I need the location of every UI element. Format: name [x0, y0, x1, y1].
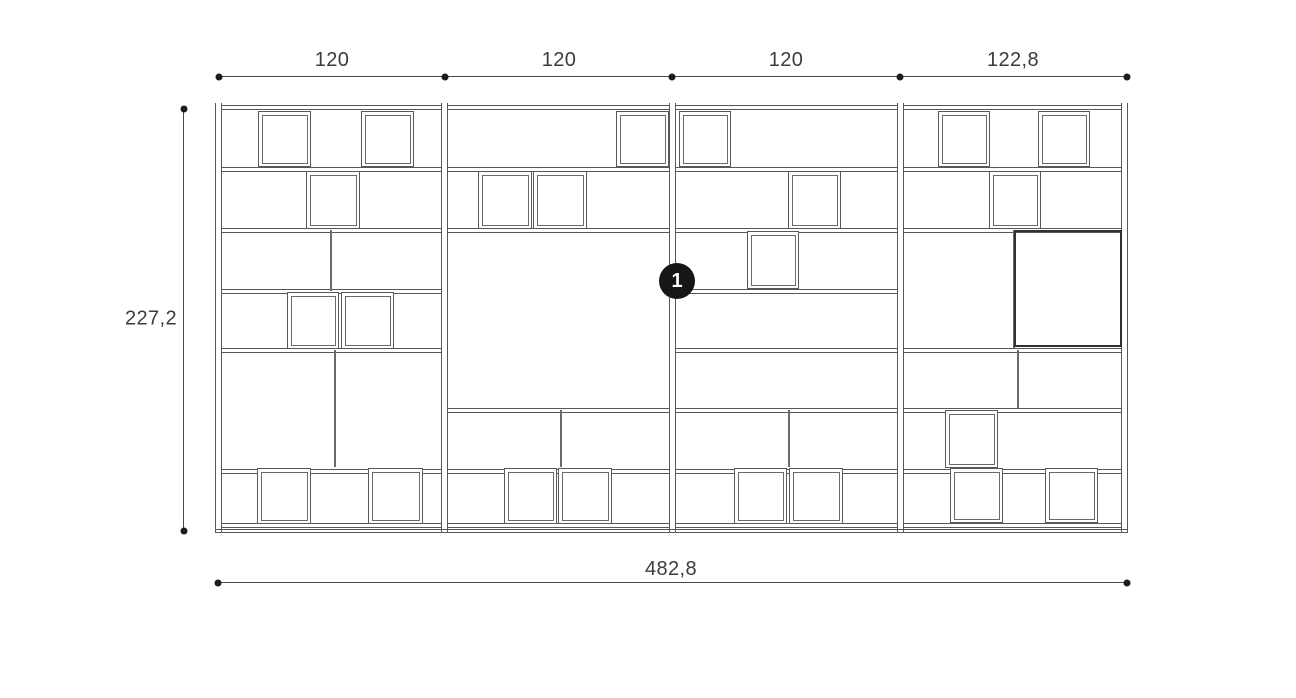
storage-box-inner	[751, 235, 796, 286]
storage-box-inner	[345, 296, 391, 346]
storage-box	[478, 171, 532, 229]
side-panel	[669, 103, 676, 533]
vertical-divider	[334, 350, 336, 467]
side-panel	[215, 103, 222, 533]
storage-box	[287, 292, 339, 349]
storage-box-inner	[372, 472, 420, 521]
storage-box	[306, 171, 360, 229]
storage-box	[747, 231, 799, 289]
storage-box	[504, 468, 557, 524]
shelf-line	[676, 408, 897, 413]
storage-box	[945, 410, 998, 468]
storage-box	[558, 468, 612, 524]
storage-box-inner	[954, 472, 1000, 520]
left-dimension-line	[183, 109, 184, 531]
plinth-line	[215, 529, 1128, 533]
shelf-line	[904, 523, 1121, 528]
side-panel	[441, 103, 448, 533]
shelf-line	[904, 348, 1121, 353]
storage-box-inner	[683, 115, 728, 164]
storage-box	[368, 468, 423, 524]
storage-box	[361, 111, 414, 167]
vertical-divider	[560, 410, 562, 467]
shelf-line	[222, 105, 441, 110]
side-panel	[1121, 103, 1128, 533]
dimension-dot	[215, 579, 222, 586]
storage-box-inner	[993, 175, 1038, 226]
storage-box	[989, 171, 1041, 229]
dimension-dot	[1124, 579, 1131, 586]
storage-box-inner	[949, 414, 995, 465]
storage-box	[258, 111, 311, 167]
dimension-dot	[180, 528, 187, 535]
dimension-dot	[897, 73, 904, 80]
storage-box-inner	[537, 175, 584, 226]
shelf-line	[904, 105, 1121, 110]
dimension-label: 120	[542, 49, 577, 72]
shelf-line	[676, 167, 897, 172]
large-door-frame	[1014, 230, 1122, 347]
storage-box	[950, 468, 1003, 523]
shelf-line	[448, 105, 669, 110]
storage-box	[679, 111, 731, 167]
dimension-dot	[180, 106, 187, 113]
shelf-line	[448, 408, 669, 413]
storage-box-inner	[365, 115, 411, 164]
storage-box	[533, 171, 587, 229]
storage-box	[341, 292, 394, 349]
dimension-dot	[216, 73, 223, 80]
storage-box-inner	[310, 175, 357, 226]
shelf-line	[904, 408, 1121, 413]
vertical-divider	[330, 230, 332, 291]
storage-box-inner	[792, 175, 838, 226]
storage-box	[788, 171, 841, 229]
dimension-label: 120	[769, 49, 804, 72]
storage-box-inner	[1042, 115, 1087, 164]
elevation-drawing: 1 120120120122,8227,2482,8	[0, 0, 1296, 698]
vertical-divider	[788, 410, 790, 467]
dimension-label: 482,8	[645, 558, 697, 581]
storage-box-inner	[291, 296, 336, 346]
dimension-label: 227,2	[125, 308, 177, 331]
bottom-dimension-line	[218, 582, 1127, 583]
storage-box	[1038, 111, 1090, 167]
storage-box-inner	[1049, 472, 1095, 520]
callout-1-badge: 1	[659, 263, 695, 299]
storage-box	[734, 468, 787, 524]
shelf-line	[676, 289, 897, 294]
vertical-divider	[1017, 350, 1019, 408]
storage-box-inner	[262, 115, 308, 164]
storage-box-inner	[942, 115, 987, 164]
storage-box	[938, 111, 990, 167]
storage-box-inner	[261, 472, 308, 521]
dimension-dot	[1124, 73, 1131, 80]
storage-box-inner	[738, 472, 784, 521]
dimension-label: 120	[315, 49, 350, 72]
side-panel	[897, 103, 904, 533]
storage-box-inner	[793, 472, 840, 521]
shelf-line	[676, 105, 897, 110]
dimension-dot	[442, 73, 449, 80]
storage-box-inner	[620, 115, 666, 164]
storage-box-inner	[482, 175, 529, 226]
storage-box-inner	[508, 472, 554, 521]
storage-box	[257, 468, 311, 524]
storage-box	[1045, 468, 1098, 523]
dimension-label: 122,8	[987, 49, 1039, 72]
storage-box	[789, 468, 843, 524]
storage-box-inner	[562, 472, 609, 521]
shelf-line	[676, 348, 897, 353]
dimension-dot	[669, 73, 676, 80]
storage-box	[616, 111, 669, 167]
